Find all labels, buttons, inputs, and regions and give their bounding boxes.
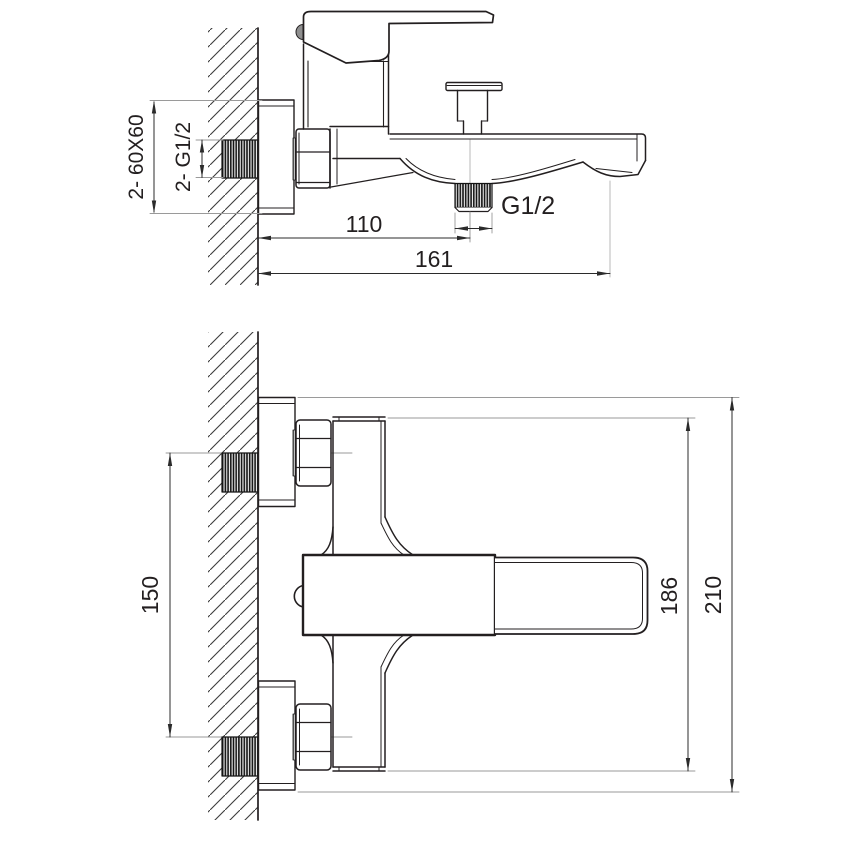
dimension-210: 210 [700,398,734,793]
handle-screw-cover [296,25,303,40]
upper-escutcheon [259,398,296,507]
upper-mounting-nut [296,420,331,486]
lower-escutcheon [259,681,296,790]
dim-label-186: 186 [656,577,682,615]
dimension-110: 110 [258,211,470,242]
dim-label-wall-thread: 2- G1/2 [172,122,195,192]
wall-pipe-thread [222,140,258,178]
front-view: 150 186 210 [137,332,739,820]
upper-wall-pipe-thread [222,453,258,492]
dim-label-outlet-thread: G1/2 [501,192,555,220]
mounting-nut [296,129,330,188]
spout-underside-right-curve [492,162,583,184]
dim-label-161: 161 [415,246,453,272]
escutcheon-plate [259,100,295,214]
drawing-sheet: 2- 60X60 2- G1/2 110 161 G1/2 [0,0,868,868]
diverter-knob [446,83,502,135]
valve-body-front [294,555,510,635]
spout [333,134,646,184]
dim-label-plate-size: 2- 60X60 [125,114,148,199]
body-cone-transition [331,173,413,188]
dim-label-110: 110 [346,211,383,237]
upper-right-fillet [385,517,413,555]
lower-wall-pipe-thread [222,737,258,776]
lower-mounting-nut [296,704,331,770]
dim-label-150: 150 [137,576,163,614]
shower-outlet [455,184,492,212]
handle-lever [296,12,493,64]
spout-underside-left-curve [400,159,455,184]
dimension-186: 186 [656,418,690,771]
dim-label-210: 210 [700,576,726,614]
spout-outlet-tip [583,161,646,177]
side-view: 2- 60X60 2- G1/2 110 161 G1/2 [125,12,646,286]
handle-lever-front [495,558,648,635]
dimension-150: 150 [137,453,172,737]
faucet-technical-drawing: 2- 60X60 2- G1/2 110 161 G1/2 [0,0,868,868]
dimension-161: 161 [258,246,610,276]
lower-right-fillet [385,635,413,673]
left-boss-arc [294,586,303,608]
